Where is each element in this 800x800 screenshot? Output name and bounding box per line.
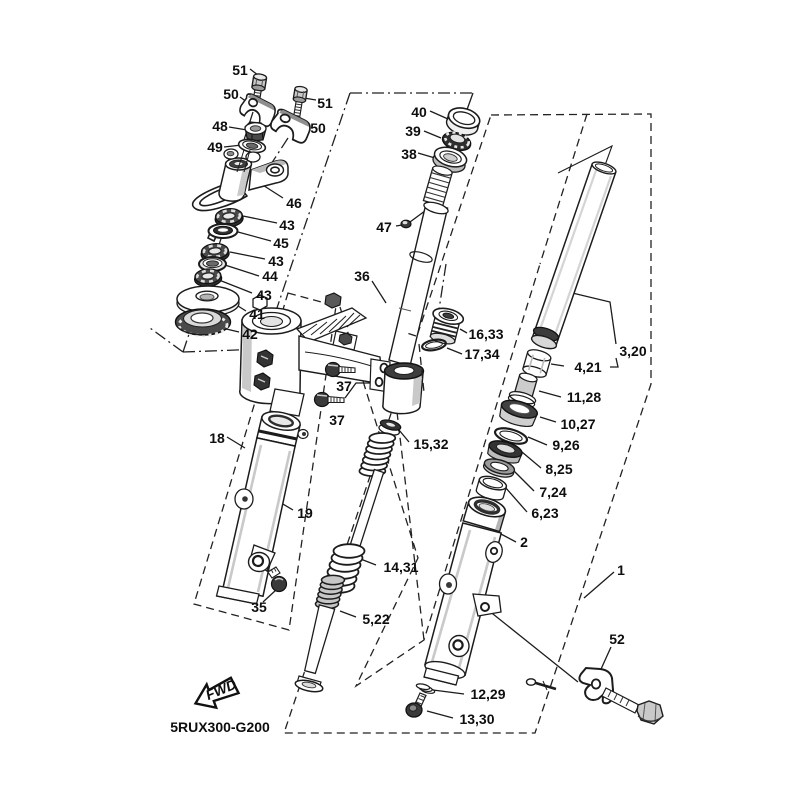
svg-text:13,30: 13,30 xyxy=(459,711,494,727)
svg-text:41: 41 xyxy=(249,306,265,322)
svg-text:43: 43 xyxy=(279,217,295,233)
svg-text:5,22: 5,22 xyxy=(362,611,389,627)
svg-text:50: 50 xyxy=(310,120,326,136)
svg-text:5RUX300-G200: 5RUX300-G200 xyxy=(170,719,270,735)
svg-text:50: 50 xyxy=(223,86,239,102)
svg-text:2: 2 xyxy=(520,534,528,550)
svg-text:39: 39 xyxy=(405,123,421,139)
svg-text:18: 18 xyxy=(209,430,225,446)
svg-text:17,34: 17,34 xyxy=(464,346,499,362)
svg-text:14,31: 14,31 xyxy=(383,559,418,575)
svg-text:6,23: 6,23 xyxy=(531,505,558,521)
svg-text:45: 45 xyxy=(273,235,289,251)
svg-text:38: 38 xyxy=(401,146,417,162)
svg-text:4,21: 4,21 xyxy=(574,359,601,375)
svg-text:37: 37 xyxy=(329,412,345,428)
svg-text:52: 52 xyxy=(609,631,625,647)
svg-text:42: 42 xyxy=(242,326,258,342)
svg-text:7,24: 7,24 xyxy=(539,484,566,500)
svg-text:36: 36 xyxy=(354,268,370,284)
svg-text:46: 46 xyxy=(286,195,302,211)
svg-text:11,28: 11,28 xyxy=(567,389,601,405)
svg-text:10,27: 10,27 xyxy=(560,416,595,432)
svg-text:47: 47 xyxy=(376,219,392,235)
svg-text:1: 1 xyxy=(617,562,625,578)
svg-text:16,33: 16,33 xyxy=(468,326,503,342)
svg-text:15,32: 15,32 xyxy=(413,436,448,452)
svg-text:51: 51 xyxy=(232,62,248,78)
svg-text:37: 37 xyxy=(336,378,352,394)
svg-text:43: 43 xyxy=(256,287,272,303)
svg-text:49: 49 xyxy=(207,139,223,155)
svg-text:48: 48 xyxy=(212,118,228,134)
svg-text:19: 19 xyxy=(297,505,313,521)
svg-text:12,29: 12,29 xyxy=(470,686,505,702)
svg-text:40: 40 xyxy=(411,104,427,120)
svg-text:51: 51 xyxy=(317,95,333,111)
svg-text:44: 44 xyxy=(262,268,278,284)
svg-text:8,25: 8,25 xyxy=(545,461,572,477)
svg-text:43: 43 xyxy=(268,253,284,269)
svg-text:35: 35 xyxy=(251,599,267,615)
svg-text:9,26: 9,26 xyxy=(552,437,579,453)
svg-text:3,20: 3,20 xyxy=(619,343,646,359)
